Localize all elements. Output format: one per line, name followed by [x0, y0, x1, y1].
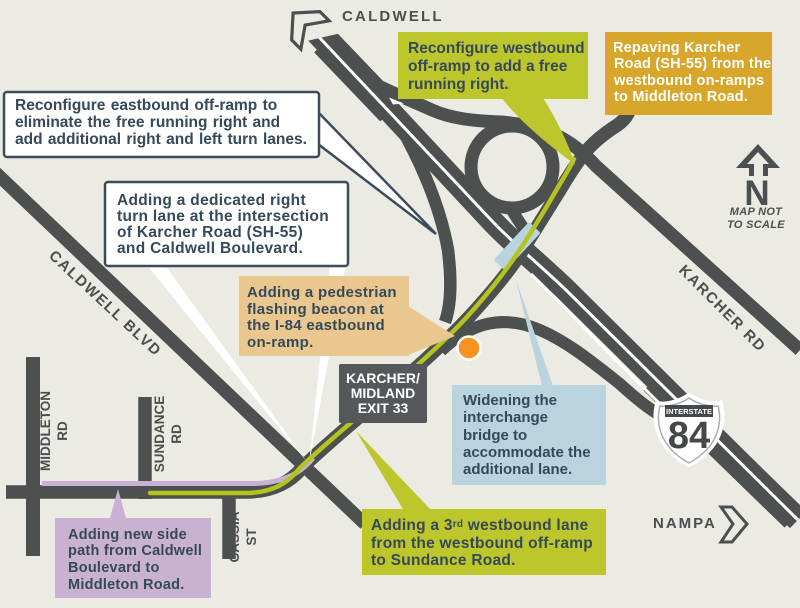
- svg-text:Repaving Karcher: Repaving Karcher: [613, 40, 740, 56]
- svg-text:ST: ST: [244, 528, 259, 546]
- svg-text:Adding a dedicated right: Adding a dedicated right: [117, 192, 306, 209]
- svg-text:and Caldwell Boulevard.: and Caldwell Boulevard.: [117, 240, 303, 257]
- svg-text:Adding a pedestrian: Adding a pedestrian: [247, 284, 397, 301]
- svg-text:SUNDANCE: SUNDANCE: [152, 396, 167, 473]
- svg-text:TO SCALE: TO SCALE: [727, 219, 785, 231]
- svg-text:path from Caldwell: path from Caldwell: [68, 543, 202, 559]
- svg-text:to Middleton Road.: to Middleton Road.: [614, 89, 748, 105]
- svg-text:Adding new side: Adding new side: [68, 527, 187, 543]
- svg-text:accommodate the: accommodate the: [463, 444, 591, 461]
- svg-text:KARCHER/: KARCHER/: [346, 370, 420, 386]
- svg-text:MIDDLETON: MIDDLETON: [38, 391, 53, 471]
- svg-text:RD: RD: [169, 424, 184, 444]
- svg-text:RD: RD: [55, 421, 70, 441]
- svg-text:the I-84 eastbound: the I-84 eastbound: [247, 317, 385, 334]
- svg-text:off-ramp to add a free: off-ramp to add a free: [408, 58, 568, 75]
- svg-text:additional lane.: additional lane.: [463, 461, 572, 478]
- svg-text:Widening the: Widening the: [463, 392, 557, 409]
- svg-text:Middleton Road.: Middleton Road.: [68, 577, 185, 593]
- svg-text:to Sundance Road.: to Sundance Road.: [371, 552, 516, 569]
- svg-text:turn lane at the intersection: turn lane at the intersection: [117, 208, 329, 225]
- svg-text:from the westbound off-ramp: from the westbound off-ramp: [371, 535, 593, 552]
- svg-text:flashing beacon at: flashing beacon at: [247, 301, 384, 318]
- svg-text:MAP NOT: MAP NOT: [730, 206, 783, 218]
- svg-text:interchange: interchange: [463, 409, 548, 426]
- svg-text:Reconfigure eastbound off-ramp: Reconfigure eastbound off-ramp to: [15, 97, 277, 114]
- svg-text:NAMPA: NAMPA: [653, 515, 717, 532]
- svg-text:EXIT 33: EXIT 33: [358, 400, 409, 416]
- svg-text:Boulevard to: Boulevard to: [68, 560, 160, 576]
- svg-text:running right.: running right.: [408, 76, 509, 93]
- svg-text:on-ramp.: on-ramp.: [247, 334, 314, 351]
- svg-text:Road (SH-55) from the: Road (SH-55) from the: [614, 56, 771, 72]
- svg-text:add additional right and left: add additional right and left turn lanes…: [15, 131, 307, 148]
- svg-text:eliminate the free running rig: eliminate the free running right and: [15, 114, 280, 131]
- svg-text:CALDWELL: CALDWELL: [342, 8, 444, 25]
- svg-text:Adding a 3rd westbound lane: Adding a 3rd westbound lane: [371, 517, 589, 534]
- svg-text:84: 84: [668, 415, 710, 457]
- svg-text:westbound on-ramps: westbound on-ramps: [613, 73, 764, 89]
- svg-text:Reconfigure westbound: Reconfigure westbound: [408, 40, 585, 57]
- svg-text:CASSIA: CASSIA: [227, 511, 242, 562]
- svg-text:bridge to: bridge to: [463, 427, 527, 444]
- svg-text:of Karcher Road (SH-55): of Karcher Road (SH-55): [117, 224, 303, 241]
- svg-text:MIDLAND: MIDLAND: [351, 385, 416, 401]
